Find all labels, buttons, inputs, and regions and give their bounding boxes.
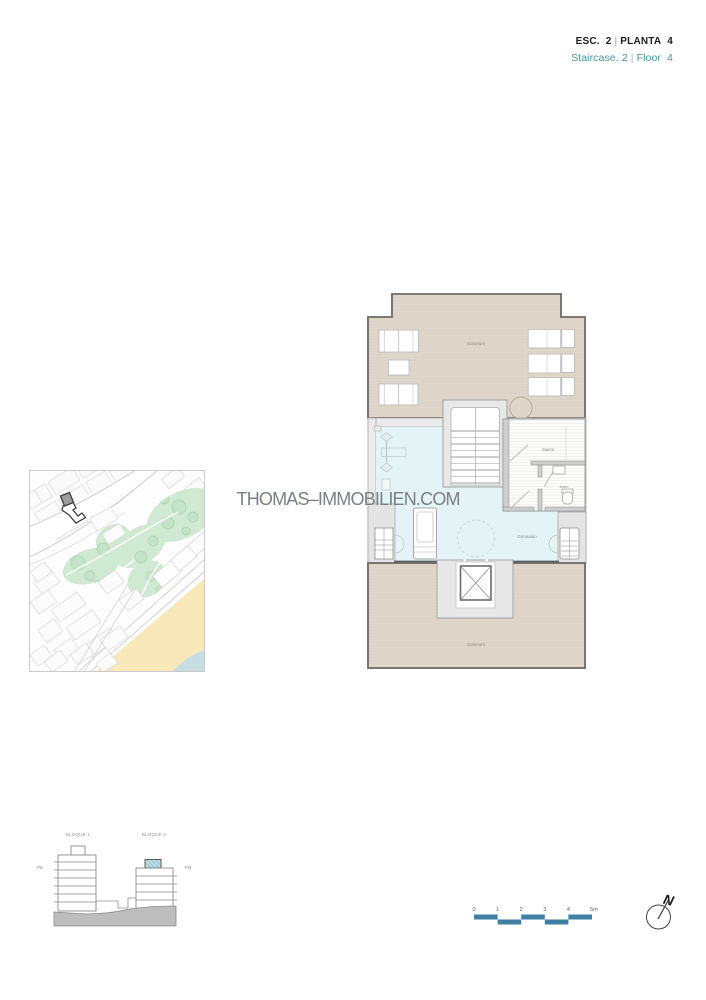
svg-text:0: 0 [472,907,475,913]
svg-text:Aseo: Aseo [560,485,569,489]
svg-text:4: 4 [567,907,570,913]
svg-text:Solarium: Solarium [467,642,485,647]
svg-text:Solarium: Solarium [467,341,485,346]
svg-text:2: 2 [520,907,523,913]
svg-text:PB: PB [37,865,43,870]
svg-text:BLOQUE 2: BLOQUE 2 [142,832,167,837]
svg-text:BLOQUE 1: BLOQUE 1 [66,832,91,837]
svg-text:1: 1 [496,907,499,913]
svg-text:PM: PM [185,865,192,870]
svg-text:Gimnasio: Gimnasio [517,534,537,539]
svg-text:3: 3 [543,907,546,913]
svg-text:N: N [662,891,677,909]
svg-text:5m: 5m [590,907,598,913]
svg-text:Sauna: Sauna [542,447,555,452]
